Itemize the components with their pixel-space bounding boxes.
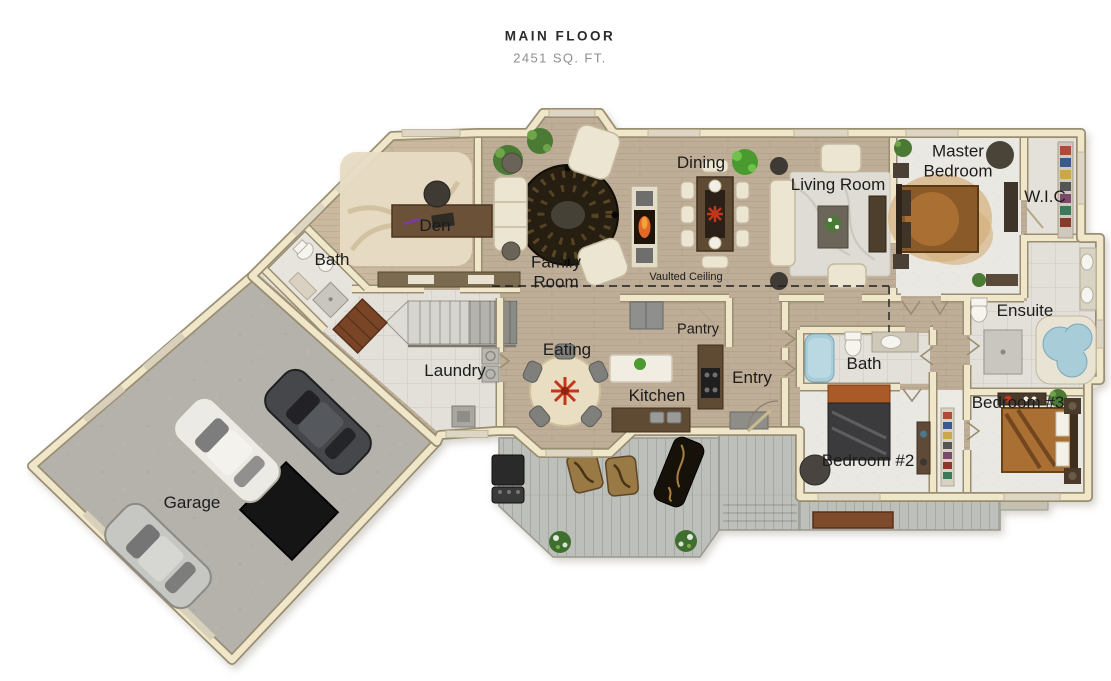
family-plant: [527, 128, 553, 154]
bbq-grill: [492, 455, 524, 503]
floor-plan: MAIN FLOOR 2451 SQ. FT. Den Bath Family …: [0, 0, 1111, 681]
plan-subtitle: 2451 SQ. FT.: [513, 51, 606, 66]
ensuite-toilet: [971, 298, 987, 322]
vaulted-ceiling-label: Vaulted Ceiling: [649, 271, 722, 283]
room-label-dining: Dining: [677, 153, 725, 173]
dining-centerpiece: [707, 206, 723, 222]
entry-mat: [730, 412, 768, 429]
room-label-bedroom-2: Bedroom #2: [822, 451, 915, 471]
living-chair: [828, 264, 866, 288]
room-label-wic: W.I.C: [1024, 187, 1066, 207]
living-loveseat: [821, 144, 861, 172]
room-label-kitchen: Kitchen: [629, 386, 686, 406]
room-label-living-room: Living Room: [791, 175, 886, 195]
room-label-eating: Eating: [543, 340, 591, 360]
room-label-family-room: Family Room: [521, 252, 591, 291]
room-label-bath-hall: Bath: [847, 354, 882, 374]
nightstand: [893, 163, 909, 178]
bedroom2-dresser: [917, 422, 930, 474]
den-chair: [424, 181, 450, 207]
deck-planter: [675, 530, 697, 552]
deck-planter: [549, 531, 571, 553]
family-sofa: [494, 177, 527, 251]
bed3-headboard: [1070, 406, 1078, 474]
door-mat: [813, 512, 893, 528]
cooktop: [701, 368, 720, 398]
media-console: [869, 196, 886, 252]
room-label-master-bedroom: Master Bedroom: [913, 141, 1003, 180]
nightstand: [893, 254, 909, 269]
master-dresser: [1004, 182, 1018, 232]
hall-closet: [941, 408, 954, 486]
room-label-den: Den: [419, 216, 450, 236]
room-label-bedroom-3: Bedroom #3: [972, 393, 1065, 413]
dining-plant: [732, 149, 758, 175]
master-console: [986, 274, 1018, 286]
patio-chair: [605, 456, 639, 497]
table-centerpiece: [551, 377, 579, 405]
side-table: [502, 242, 520, 260]
room-label-ensuite: Ensuite: [997, 301, 1054, 321]
bed2-headboard: [828, 385, 890, 405]
room-label-garage: Garage: [164, 493, 221, 513]
room-label-bath-main: Bath: [315, 250, 350, 270]
fireplace: [631, 186, 658, 268]
coffee-table-plant: [825, 216, 841, 232]
side-table: [502, 153, 522, 173]
island-plant: [634, 358, 646, 370]
master-plant: [894, 139, 912, 157]
toilet: [845, 332, 861, 356]
room-label-pantry: Pantry: [677, 322, 719, 339]
plan-title: MAIN FLOOR: [505, 29, 616, 44]
room-label-laundry: Laundry: [424, 361, 485, 381]
den-bench: [378, 272, 520, 287]
room-label-entry: Entry: [732, 368, 772, 388]
